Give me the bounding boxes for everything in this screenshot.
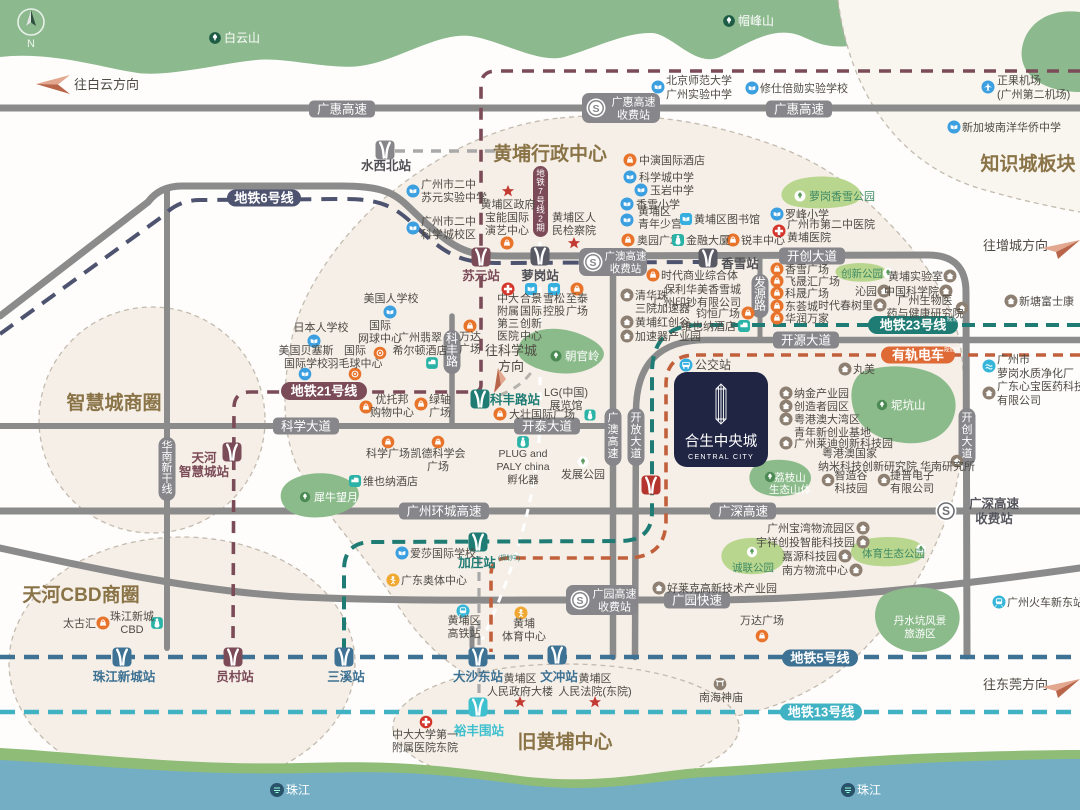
svg-text:雪松: 雪松 <box>543 291 565 305</box>
svg-text:大沙东站: 大沙东站 <box>453 669 504 684</box>
svg-text:维也纳酒店: 维也纳酒店 <box>363 474 418 488</box>
svg-text:丸美: 丸美 <box>853 363 875 376</box>
svg-text:PALY china: PALY china <box>496 461 549 473</box>
svg-text:广东奥体中心: 广东奥体中心 <box>401 573 467 587</box>
svg-text:清华珠: 清华珠 <box>635 288 668 302</box>
svg-text:南方物流中心: 南方物流中心 <box>782 563 848 577</box>
svg-text:澳: 澳 <box>608 423 619 436</box>
svg-text:香雪站: 香雪站 <box>720 256 759 271</box>
svg-text:三溪站: 三溪站 <box>327 669 365 684</box>
svg-text:粤港澳大湾区: 粤港澳大湾区 <box>794 412 860 426</box>
svg-text:飞晟汇广场: 飞晟汇广场 <box>785 274 840 288</box>
svg-text:民检察院: 民检察院 <box>552 223 596 237</box>
svg-text:广澳高速: 广澳高速 <box>605 249 647 262</box>
svg-text:收费站: 收费站 <box>598 599 631 613</box>
svg-text:广州市: 广州市 <box>997 352 1030 366</box>
svg-text:路: 路 <box>754 297 766 312</box>
svg-text:智造谷: 智造谷 <box>835 468 868 482</box>
svg-text:珠江新城站: 珠江新城站 <box>93 669 156 684</box>
svg-text:天河CBD商圈: 天河CBD商圈 <box>22 583 139 606</box>
svg-text:时代商业综合体: 时代商业综合体 <box>661 268 738 282</box>
svg-text:N: N <box>27 38 35 50</box>
svg-text:黄埔红创谷: 黄埔红创谷 <box>635 315 690 329</box>
svg-text:开: 开 <box>631 412 642 424</box>
svg-text:黄埔医院: 黄埔医院 <box>787 230 831 244</box>
svg-text:广: 广 <box>608 411 619 424</box>
svg-text:广场: 广场 <box>427 459 449 473</box>
svg-text:演艺中心: 演艺中心 <box>485 223 529 237</box>
svg-text:萝岗站: 萝岗站 <box>521 268 559 283</box>
svg-text:广东心宝医药科技: 广东心宝医药科技 <box>997 379 1080 393</box>
svg-text:大: 大 <box>962 434 973 448</box>
svg-text:有限公司: 有限公司 <box>997 393 1041 407</box>
svg-text:速: 速 <box>608 447 619 460</box>
svg-text:道: 道 <box>962 446 973 460</box>
svg-text:放: 放 <box>631 422 642 436</box>
svg-text:智慧城站: 智慧城站 <box>178 464 230 479</box>
svg-text:开泰大道: 开泰大道 <box>522 419 573 433</box>
svg-text:华润万家: 华润万家 <box>785 311 829 325</box>
svg-text:创: 创 <box>962 423 973 436</box>
svg-text:美国贝塞斯: 美国贝塞斯 <box>279 343 334 357</box>
svg-text:CBD: CBD <box>120 624 143 636</box>
svg-text:医院: 医院 <box>497 329 519 343</box>
svg-text:科技园: 科技园 <box>835 481 868 495</box>
svg-text:万达: 万达 <box>459 330 481 343</box>
svg-text:科学城中学: 科学城中学 <box>639 170 694 184</box>
svg-text:中心: 中心 <box>520 330 542 343</box>
svg-text:(广州第二机场): (广州第二机场) <box>997 87 1070 101</box>
svg-text:广场: 广场 <box>566 304 588 318</box>
svg-text:捷普电子: 捷普电子 <box>890 468 934 482</box>
svg-text:中大大学第一: 中大大学第一 <box>392 727 458 741</box>
svg-text:第三: 第三 <box>497 316 519 330</box>
svg-text:纳金产业园: 纳金产业园 <box>794 386 849 400</box>
svg-text:国际: 国际 <box>369 319 391 332</box>
svg-text:苏元站: 苏元站 <box>462 268 500 283</box>
svg-text:国际: 国际 <box>520 305 542 318</box>
svg-text:附属医院东院: 附属医院东院 <box>392 740 458 754</box>
svg-text:爱莎国际学校: 爱莎国际学校 <box>410 546 476 560</box>
svg-text:广州火车新东站: 广州火车新东站 <box>1007 595 1080 609</box>
svg-text:宇祥创投智能科技园: 宇祥创投智能科技园 <box>756 535 855 549</box>
svg-text:广惠高速: 广惠高速 <box>612 94 656 108</box>
svg-text:有轨电车: 有轨电车 <box>892 348 944 363</box>
svg-text:开: 开 <box>962 412 973 424</box>
svg-text:珠江: 珠江 <box>857 783 881 797</box>
svg-text:羽毛球中心: 羽毛球中心 <box>328 356 383 370</box>
svg-text:青年新创业基地: 青年新创业基地 <box>794 425 871 439</box>
svg-text:收费站: 收费站 <box>975 511 1013 526</box>
svg-text:广州市二中: 广州市二中 <box>421 214 476 228</box>
svg-text:科学大道: 科学大道 <box>281 418 332 433</box>
svg-text:规划中: 规划中 <box>944 346 961 354</box>
svg-text:丹水坑风景: 丹水坑风景 <box>894 614 947 627</box>
svg-text:高铁站: 高铁站 <box>448 626 481 640</box>
svg-text:玉岩中学: 玉岩中学 <box>650 183 694 197</box>
svg-text:黄埔区: 黄埔区 <box>448 613 481 627</box>
svg-text:创新: 创新 <box>520 316 542 330</box>
svg-text:黄埔实验室: 黄埔实验室 <box>888 269 943 283</box>
svg-text:新加坡南洋华侨中学: 新加坡南洋华侨中学 <box>962 120 1061 134</box>
svg-text:合生中央城: 合生中央城 <box>685 433 758 450</box>
svg-text:合景: 合景 <box>520 291 542 305</box>
svg-text:金融大厦: 金融大厦 <box>686 233 730 247</box>
svg-text:广园快速: 广园快速 <box>672 593 723 607</box>
svg-text:粤港澳国家: 粤港澳国家 <box>822 446 877 460</box>
svg-text:修仕倍勋实验学校: 修仕倍勋实验学校 <box>760 81 848 95</box>
svg-text:地铁6号线: 地铁6号线 <box>234 191 293 206</box>
svg-text:广州市二中: 广州市二中 <box>421 177 476 191</box>
svg-text:创新公园: 创新公园 <box>841 267 883 280</box>
svg-text:优托邦: 优托邦 <box>376 392 409 406</box>
svg-text:旅游区: 旅游区 <box>904 627 936 640</box>
svg-text:诚联公园: 诚联公园 <box>732 562 774 574</box>
svg-text:大: 大 <box>631 434 642 448</box>
svg-text:发展公园: 发展公园 <box>561 467 605 481</box>
svg-text:购物中心: 购物中心 <box>370 405 414 419</box>
svg-text:广州市第二中医院: 广州市第二中医院 <box>787 217 875 231</box>
svg-text:CENTRAL CITY: CENTRAL CITY <box>688 452 754 461</box>
svg-text:孵化器: 孵化器 <box>507 473 539 486</box>
svg-text:太古汇: 太古汇 <box>63 617 96 630</box>
svg-text:萝岗香雪公园: 萝岗香雪公园 <box>809 190 875 203</box>
svg-text:时代春树里: 时代春树里 <box>818 298 873 312</box>
svg-text:广州实验中学: 广州实验中学 <box>666 87 732 101</box>
svg-text:体育生态公园: 体育生态公园 <box>862 547 925 560</box>
svg-text:生态山体: 生态山体 <box>769 483 811 496</box>
svg-text:加速器产业园: 加速器产业园 <box>635 329 701 343</box>
svg-text:黄埔区: 黄埔区 <box>638 204 671 218</box>
svg-text:中大: 中大 <box>497 291 519 305</box>
svg-text:广州翡翠: 广州翡翠 <box>398 331 442 344</box>
svg-text:科晟广场: 科晟广场 <box>785 286 829 300</box>
svg-text:往增城方向: 往增城方向 <box>983 238 1048 253</box>
svg-text:犀牛望月: 犀牛望月 <box>314 490 358 504</box>
svg-text:沁园: 沁园 <box>855 285 877 298</box>
svg-text:裕丰围站: 裕丰围站 <box>454 723 505 738</box>
svg-text:北京师范大学: 北京师范大学 <box>666 73 732 87</box>
svg-text:方向: 方向 <box>498 359 524 374</box>
svg-text:收费站: 收费站 <box>617 107 650 121</box>
svg-text:日本人学校: 日本人学校 <box>294 320 349 334</box>
svg-text:网球中心: 网球中心 <box>358 331 402 345</box>
svg-text:朝官岭: 朝官岭 <box>565 349 600 363</box>
svg-text:希尔顿酒店: 希尔顿酒店 <box>393 343 448 357</box>
svg-text:往东莞方向: 往东莞方向 <box>983 677 1048 692</box>
svg-text:白云山: 白云山 <box>224 30 260 45</box>
svg-text:文冲站: 文冲站 <box>540 669 578 684</box>
svg-text:员村站: 员村站 <box>216 669 254 684</box>
svg-text:天河: 天河 <box>191 450 217 465</box>
svg-text:珠江新城: 珠江新城 <box>110 609 154 623</box>
svg-text:创造者园区: 创造者园区 <box>794 399 849 413</box>
svg-text:展览馆: 展览馆 <box>550 398 583 412</box>
svg-text:广州环城高速: 广州环城高速 <box>406 503 482 518</box>
svg-text:中演国际酒店: 中演国际酒店 <box>639 153 705 167</box>
svg-text:公交站: 公交站 <box>695 357 731 372</box>
svg-text:萝岗水质净化厂: 萝岗水质净化厂 <box>997 366 1074 380</box>
svg-text:收费站: 收费站 <box>610 262 642 275</box>
svg-text:锐丰中心: 锐丰中心 <box>741 233 785 247</box>
svg-text:新塘富士康: 新塘富士康 <box>1019 294 1074 308</box>
svg-text:万达广场: 万达广场 <box>740 613 784 627</box>
svg-text:广州宝湾物流园区: 广州宝湾物流园区 <box>767 521 855 535</box>
svg-text:珠江: 珠江 <box>286 783 310 797</box>
svg-text:体育中心: 体育中心 <box>502 629 546 643</box>
svg-text:智慧城商圈: 智慧城商圈 <box>66 391 161 414</box>
svg-text:(规划中): (规划中) <box>498 554 520 562</box>
svg-text:东荟城: 东荟城 <box>785 299 818 313</box>
svg-text:至泰: 至泰 <box>566 291 588 305</box>
svg-text:路: 路 <box>446 353 458 368</box>
svg-text:三院加速器: 三院加速器 <box>635 301 690 315</box>
svg-text:科丰路站: 科丰路站 <box>490 392 541 407</box>
svg-text:国际学校: 国际学校 <box>284 356 328 370</box>
svg-text:PLUG and: PLUG and <box>498 448 547 460</box>
svg-text:黄埔行政中心: 黄埔行政中心 <box>493 142 607 165</box>
svg-text:地铁5号线: 地铁5号线 <box>790 651 849 666</box>
svg-text:附属: 附属 <box>497 304 519 318</box>
svg-text:S: S <box>942 504 950 518</box>
svg-text:绿轴: 绿轴 <box>429 392 451 406</box>
svg-text:国际: 国际 <box>344 344 366 357</box>
svg-text:保利华美香雪城: 保利华美香雪城 <box>664 282 741 296</box>
svg-text:苏元实验中学: 苏元实验中学 <box>421 190 487 204</box>
svg-text:荔枝山: 荔枝山 <box>774 471 806 484</box>
svg-text:帽峰山: 帽峰山 <box>738 13 774 28</box>
svg-text:广深高速: 广深高速 <box>969 496 1020 511</box>
svg-text:期: 期 <box>536 223 545 233</box>
svg-text:钧恒广场: 钧恒广场 <box>696 306 740 320</box>
svg-text:嘉源科技园: 嘉源科技园 <box>782 549 837 563</box>
svg-text:宝能国际: 宝能国际 <box>485 210 529 224</box>
svg-text:黄埔区图书馆: 黄埔区图书馆 <box>694 212 760 226</box>
svg-text:旧黄埔中心: 旧黄埔中心 <box>517 730 612 753</box>
svg-text:高: 高 <box>608 434 619 448</box>
svg-text:人民政府大楼: 人民政府大楼 <box>487 684 553 698</box>
svg-text:LG(中国): LG(中国) <box>544 386 588 399</box>
svg-text:正果机场: 正果机场 <box>997 73 1041 87</box>
svg-text:广州生物医: 广州生物医 <box>898 293 953 307</box>
svg-text:广场: 广场 <box>459 342 481 356</box>
svg-text:科学广场: 科学广场 <box>366 446 410 460</box>
svg-text:黄埔区人: 黄埔区人 <box>552 210 596 224</box>
svg-text:黄埔: 黄埔 <box>513 616 535 630</box>
svg-text:药与健康研究院: 药与健康研究院 <box>887 306 964 320</box>
svg-text:好莱克高新技术产业园: 好莱克高新技术产业园 <box>667 581 777 595</box>
svg-text:黄埔区政府: 黄埔区政府 <box>481 197 536 211</box>
svg-text:地铁21号线: 地铁21号线 <box>291 384 357 399</box>
svg-text:往科学城: 往科学城 <box>485 343 537 358</box>
svg-text:往白云方向: 往白云方向 <box>74 77 139 92</box>
svg-text:美国人学校: 美国人学校 <box>364 291 419 305</box>
svg-text:凯德科学会: 凯德科学会 <box>411 446 466 460</box>
svg-text:开源大道: 开源大道 <box>781 333 832 347</box>
svg-text:S: S <box>589 257 596 269</box>
svg-text:广场: 广场 <box>429 405 451 419</box>
svg-text:地铁13号线: 地铁13号线 <box>788 705 854 720</box>
svg-text:水西北站: 水西北站 <box>361 158 412 173</box>
svg-text:有限公司: 有限公司 <box>890 481 934 495</box>
svg-text:知识城板块: 知识城板块 <box>980 152 1076 175</box>
svg-text:青年少宫: 青年少宫 <box>638 217 682 231</box>
svg-text:控股: 控股 <box>543 304 565 318</box>
svg-text:香雪广场: 香雪广场 <box>785 262 829 276</box>
svg-text:南海神庙: 南海神庙 <box>699 690 743 704</box>
svg-text:S: S <box>592 103 599 115</box>
svg-text:人民法院(东院): 人民法院(东院) <box>558 684 631 698</box>
svg-text:开创大道: 开创大道 <box>787 249 838 263</box>
svg-text:线: 线 <box>162 482 173 496</box>
svg-text:黄埔区: 黄埔区 <box>504 671 537 685</box>
svg-text:道: 道 <box>631 446 642 460</box>
svg-text:黄埔区: 黄埔区 <box>579 671 612 685</box>
svg-text:广园高速: 广园高速 <box>593 586 637 600</box>
svg-text:广惠高速: 广惠高速 <box>317 101 368 116</box>
svg-text:广惠高速: 广惠高速 <box>774 101 825 116</box>
svg-text:S: S <box>576 595 583 607</box>
svg-text:广深高速: 广深高速 <box>718 503 769 518</box>
svg-text:科学城校区: 科学城校区 <box>421 227 476 241</box>
svg-text:坭坑山: 坭坑山 <box>891 398 926 412</box>
